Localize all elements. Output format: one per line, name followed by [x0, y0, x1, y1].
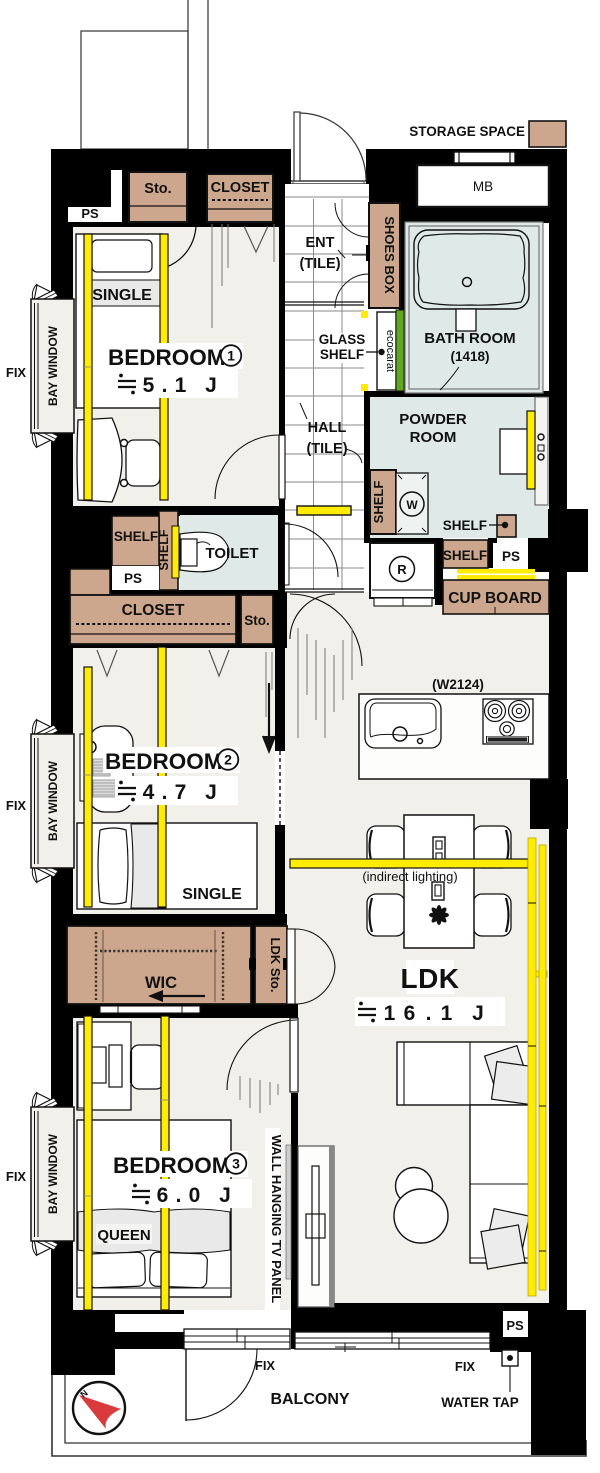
svg-text:LDK: LDK — [400, 963, 459, 994]
svg-text:QUEEN: QUEEN — [97, 1227, 150, 1244]
svg-text:ENT: ENT — [306, 235, 335, 251]
svg-text:J: J — [219, 1184, 231, 1207]
svg-text:(1418): (1418) — [450, 349, 489, 364]
svg-text:BEDROOM: BEDROOM — [105, 749, 223, 774]
svg-text:ecocarat: ecocarat — [384, 330, 396, 372]
svg-text:MB: MB — [473, 179, 493, 194]
svg-text:PS: PS — [124, 571, 142, 586]
svg-text:(indirect lighting): (indirect lighting) — [362, 869, 457, 884]
svg-text:FIX: FIX — [6, 798, 27, 813]
svg-text:1: 1 — [384, 1002, 396, 1025]
svg-text:J: J — [205, 374, 217, 397]
svg-text:CUP BOARD: CUP BOARD — [448, 590, 542, 607]
svg-text:1: 1 — [175, 374, 187, 397]
svg-text:POWDER: POWDER — [399, 411, 467, 428]
svg-text:1: 1 — [441, 1002, 453, 1025]
svg-text:CLOSET: CLOSET — [122, 602, 185, 619]
svg-text:ROOM: ROOM — [410, 429, 457, 446]
svg-text:W: W — [406, 498, 418, 512]
svg-text:PS: PS — [506, 1318, 524, 1333]
svg-text:.: . — [176, 1184, 182, 1207]
svg-text:PS: PS — [502, 549, 520, 564]
svg-text:FIX: FIX — [455, 1359, 476, 1374]
svg-text:Sto.: Sto. — [144, 181, 171, 197]
svg-text:7: 7 — [175, 781, 187, 804]
svg-text:6: 6 — [404, 1002, 416, 1025]
svg-text:J: J — [472, 1002, 484, 1025]
svg-text:FIX: FIX — [6, 1169, 27, 1184]
svg-text:BAY WINDOW: BAY WINDOW — [46, 1133, 60, 1214]
svg-text:SHELF: SHELF — [443, 518, 487, 533]
svg-text:BEDROOM: BEDROOM — [108, 345, 226, 370]
svg-text:CLOSET: CLOSET — [211, 180, 270, 196]
svg-text:HALL: HALL — [308, 420, 347, 436]
svg-text:SINGLE: SINGLE — [182, 886, 242, 903]
svg-text:.: . — [162, 781, 168, 804]
svg-text:SINGLE: SINGLE — [92, 287, 152, 304]
svg-text:6: 6 — [157, 1184, 169, 1207]
svg-text:TOILET: TOILET — [205, 545, 258, 562]
svg-text:STORAGE SPACE: STORAGE SPACE — [409, 124, 525, 139]
svg-text:5: 5 — [143, 374, 155, 397]
svg-text:BAY WINDOW: BAY WINDOW — [46, 325, 60, 406]
svg-text:SHELF: SHELF — [114, 529, 158, 544]
svg-text:GLASS: GLASS — [319, 332, 366, 347]
svg-text:(TILE): (TILE) — [306, 441, 347, 457]
svg-text:WATER TAP: WATER TAP — [441, 1395, 519, 1410]
svg-text:J: J — [205, 781, 217, 804]
svg-text:0: 0 — [189, 1184, 201, 1207]
svg-text:WALL HANGING TV PANEL: WALL HANGING TV PANEL — [269, 1135, 284, 1304]
svg-text:BAY WINDOW: BAY WINDOW — [46, 760, 60, 841]
svg-text:1: 1 — [227, 348, 235, 364]
svg-text:BALCONY: BALCONY — [270, 1391, 349, 1408]
svg-text:SHELF: SHELF — [443, 548, 487, 563]
svg-text:LDK Sto.: LDK Sto. — [268, 938, 283, 993]
svg-text:2: 2 — [224, 752, 232, 768]
svg-text:Sto.: Sto. — [244, 613, 270, 628]
svg-text:R: R — [397, 562, 407, 577]
svg-text:4: 4 — [143, 781, 155, 804]
svg-text:PS: PS — [81, 206, 99, 221]
svg-text:(TILE): (TILE) — [299, 256, 340, 272]
svg-text:3: 3 — [232, 1156, 240, 1172]
svg-text:FIX: FIX — [255, 1358, 276, 1373]
svg-text:.: . — [162, 374, 168, 397]
svg-text:SHOES BOX: SHOES BOX — [382, 216, 397, 294]
svg-text:(W2124): (W2124) — [432, 677, 484, 692]
svg-text:BEDROOM: BEDROOM — [113, 1153, 231, 1178]
svg-text:FIX: FIX — [6, 365, 27, 380]
svg-text:BATH ROOM: BATH ROOM — [424, 330, 515, 347]
svg-text:.: . — [426, 1002, 432, 1025]
svg-text:SHELF: SHELF — [371, 481, 386, 524]
svg-text:WIC: WIC — [145, 974, 177, 992]
svg-text:SHELF: SHELF — [320, 347, 364, 362]
